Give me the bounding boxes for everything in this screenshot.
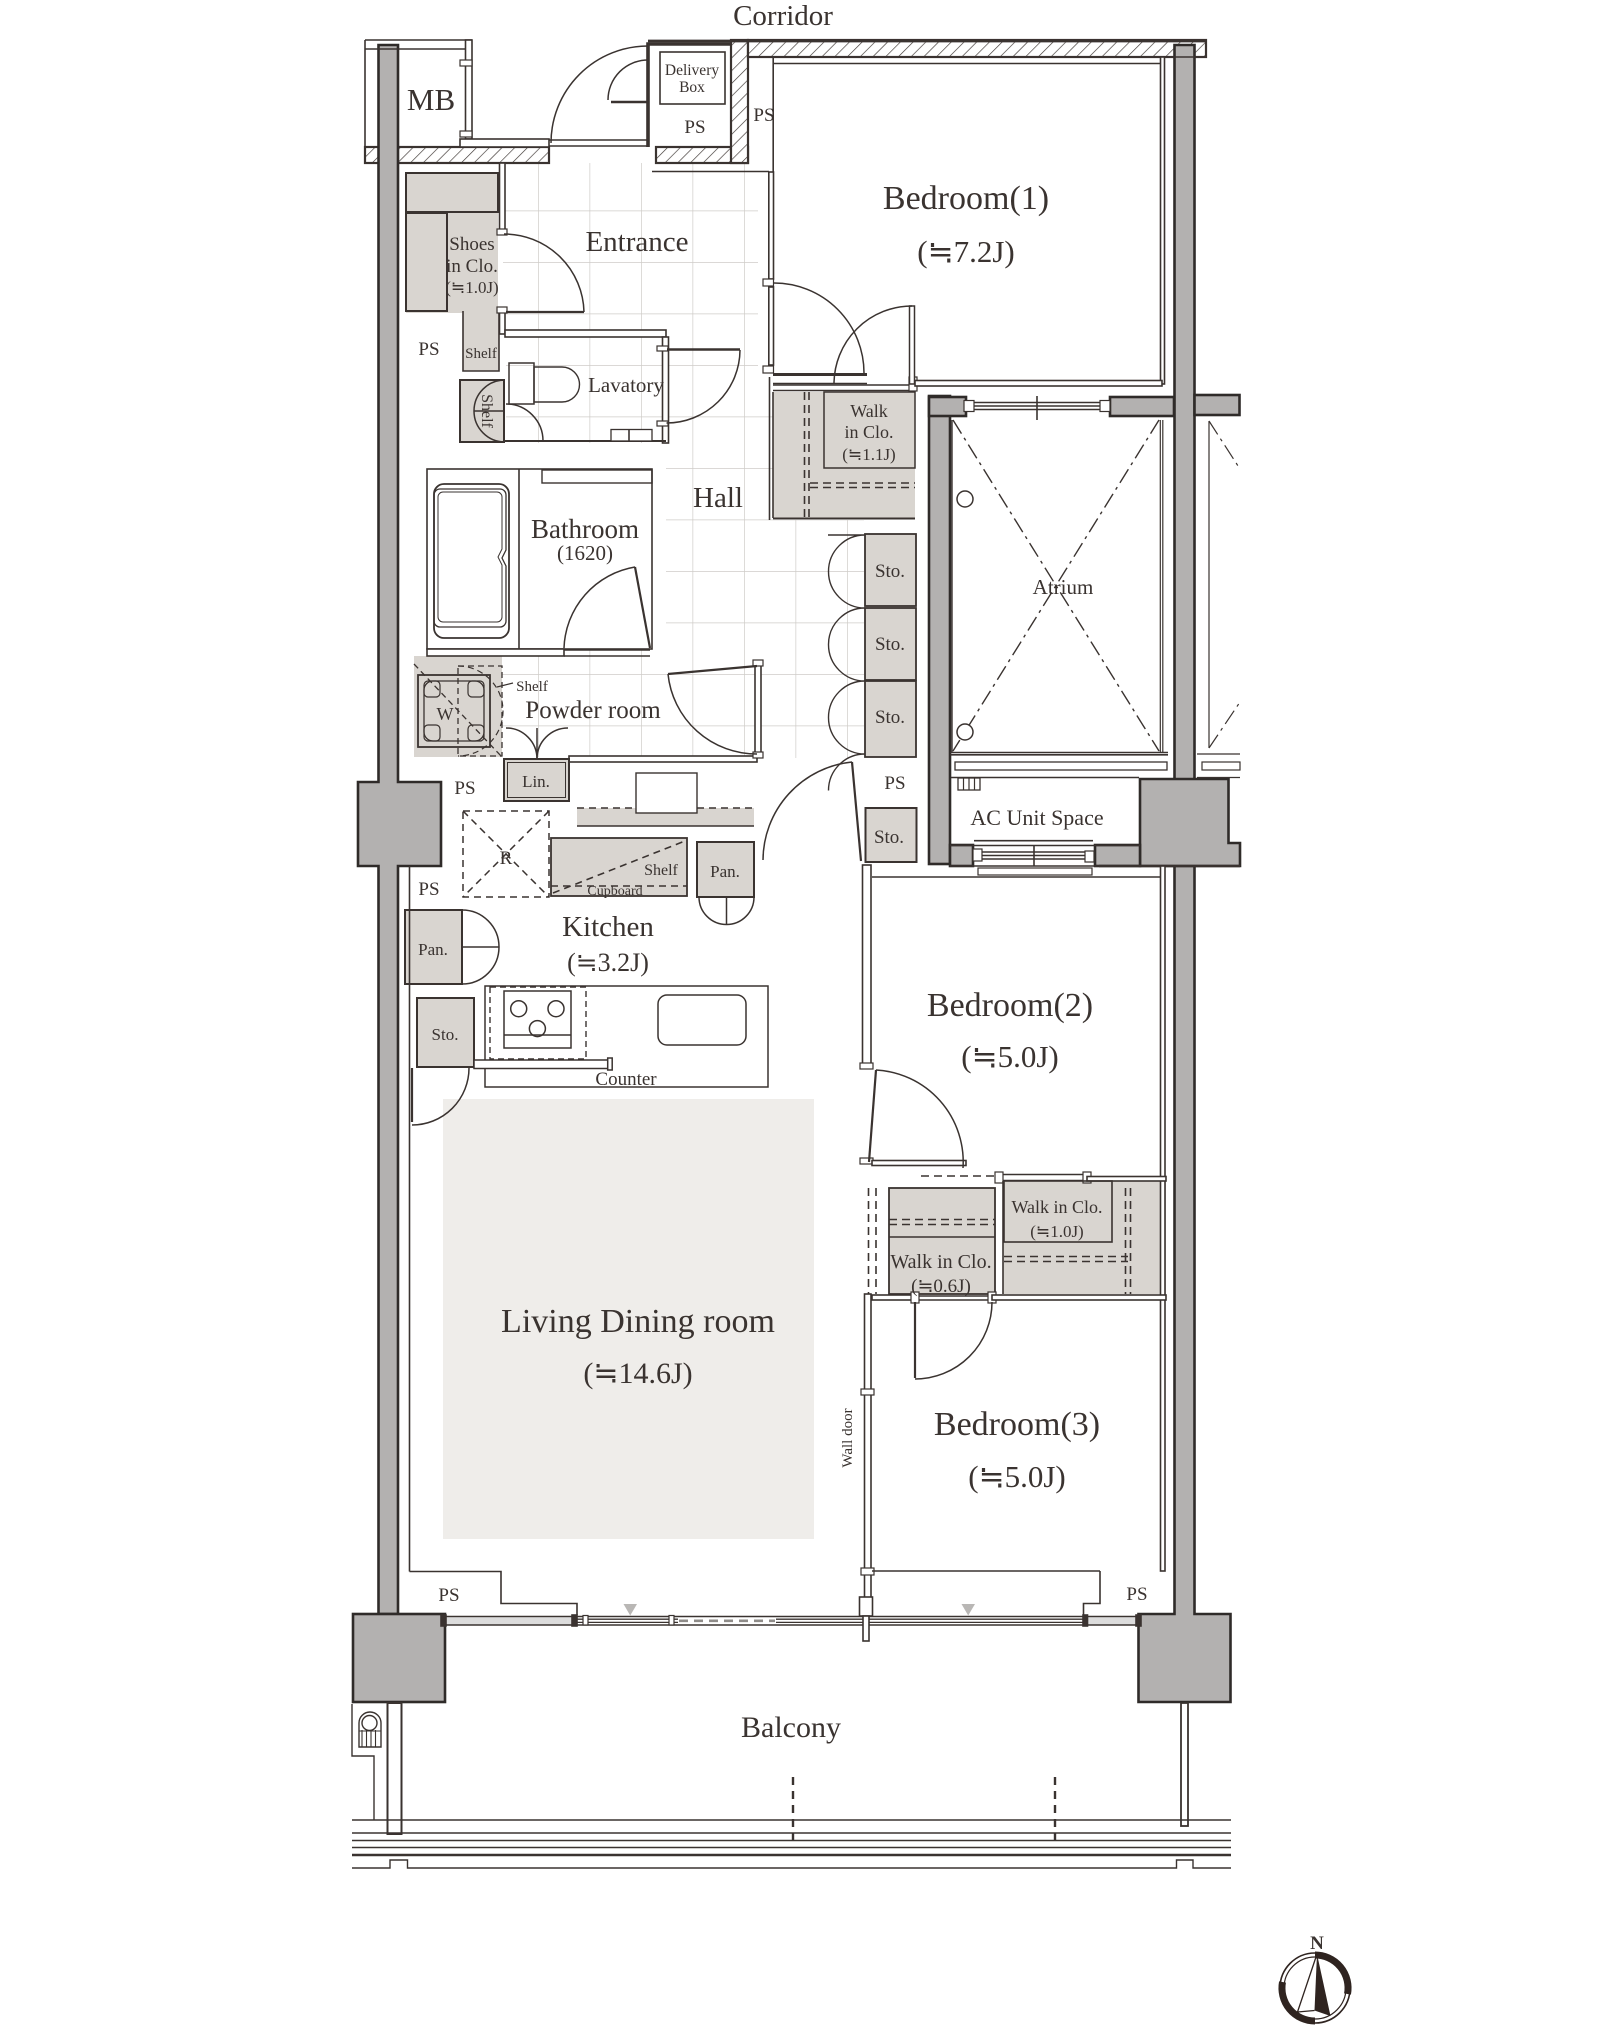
svg-text:(≒3.2J): (≒3.2J) <box>567 948 649 977</box>
svg-text:Bedroom(3): Bedroom(3) <box>934 1406 1100 1443</box>
svg-text:Walk: Walk <box>850 401 888 421</box>
svg-text:Hall: Hall <box>693 482 743 514</box>
svg-text:Pan.: Pan. <box>418 940 448 959</box>
svg-text:Walk in Clo.: Walk in Clo. <box>1011 1197 1102 1217</box>
svg-text:R: R <box>500 848 513 869</box>
svg-text:Pan.: Pan. <box>710 862 740 881</box>
svg-text:Living Dining room: Living Dining room <box>501 1303 775 1340</box>
svg-text:Walk in Clo.: Walk in Clo. <box>890 1251 991 1273</box>
svg-text:Shoes: Shoes <box>449 234 494 255</box>
svg-text:Counter: Counter <box>595 1069 657 1090</box>
svg-text:PS: PS <box>418 339 439 360</box>
svg-text:Sto.: Sto. <box>875 634 905 655</box>
svg-text:(≒7.2J): (≒7.2J) <box>917 234 1014 269</box>
svg-text:Corridor: Corridor <box>733 0 833 32</box>
svg-text:Shelf: Shelf <box>516 679 548 695</box>
svg-text:Shelf: Shelf <box>644 862 678 879</box>
svg-text:PS: PS <box>454 778 475 799</box>
svg-text:Sto.: Sto. <box>875 707 905 728</box>
svg-text:Sto.: Sto. <box>874 827 904 848</box>
svg-text:Cupboard: Cupboard <box>587 884 642 899</box>
svg-text:N: N <box>1310 1933 1324 1954</box>
svg-text:(≒0.6J): (≒0.6J) <box>911 1276 971 1297</box>
svg-text:PS: PS <box>753 105 774 126</box>
svg-text:Entrance: Entrance <box>585 226 688 258</box>
svg-text:(≒14.6J): (≒14.6J) <box>583 1357 692 1390</box>
svg-text:(≒1.0J): (≒1.0J) <box>445 278 498 297</box>
svg-text:Sto.: Sto. <box>432 1025 459 1044</box>
svg-text:PS: PS <box>684 117 705 138</box>
svg-text:Balcony: Balcony <box>741 1711 841 1744</box>
svg-text:Lin.: Lin. <box>522 772 550 791</box>
svg-text:in Clo.: in Clo. <box>446 256 498 277</box>
svg-text:(≒1.0J): (≒1.0J) <box>1030 1222 1083 1241</box>
svg-text:Atrium: Atrium <box>1033 575 1094 599</box>
svg-text:Lavatory: Lavatory <box>588 373 664 397</box>
svg-text:AC Unit Space: AC Unit Space <box>970 805 1103 830</box>
svg-text:MB: MB <box>407 82 455 117</box>
svg-text:PS: PS <box>1126 1584 1147 1605</box>
svg-text:Bathroom: Bathroom <box>531 514 639 544</box>
svg-text:Bedroom(1): Bedroom(1) <box>883 180 1049 217</box>
svg-text:(≒5.0J): (≒5.0J) <box>968 1459 1065 1494</box>
svg-text:(1620): (1620) <box>557 541 613 565</box>
svg-text:(≒5.0J): (≒5.0J) <box>961 1039 1058 1074</box>
svg-text:Powder room: Powder room <box>525 697 661 724</box>
svg-text:PS: PS <box>418 879 439 900</box>
svg-text:Sto.: Sto. <box>875 561 905 582</box>
svg-text:W: W <box>437 704 454 724</box>
svg-text:Box: Box <box>679 79 705 96</box>
svg-text:Wall door: Wall door <box>840 1408 856 1467</box>
svg-text:Delivery: Delivery <box>665 62 719 79</box>
svg-text:Shelf: Shelf <box>478 394 495 428</box>
svg-text:Shelf: Shelf <box>465 346 497 362</box>
svg-text:Kitchen: Kitchen <box>562 911 654 943</box>
svg-text:in Clo.: in Clo. <box>844 422 893 442</box>
svg-text:Bedroom(2): Bedroom(2) <box>927 987 1093 1024</box>
svg-text:PS: PS <box>438 1585 459 1606</box>
svg-text:PS: PS <box>884 773 905 794</box>
svg-text:(≒1.1J): (≒1.1J) <box>842 445 895 464</box>
